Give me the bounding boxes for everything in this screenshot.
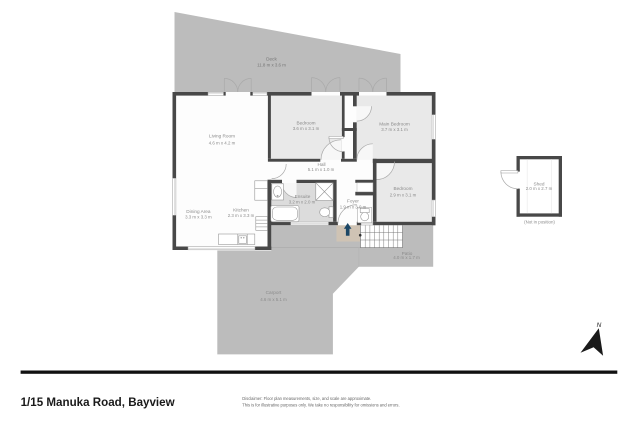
svg-text:3.2 m x 2.0 m: 3.2 m x 2.0 m — [289, 200, 316, 205]
svg-text:Carport: Carport — [266, 290, 282, 295]
svg-text:(Not in position): (Not in position) — [524, 219, 555, 224]
svg-text:3.6 m x 3.1 m: 3.6 m x 3.1 m — [293, 126, 320, 131]
svg-text:Kitchen: Kitchen — [233, 207, 249, 212]
svg-text:5.1 m x 1.0 m: 5.1 m x 1.0 m — [308, 167, 335, 172]
svg-text:4.6 m x 5.1 m: 4.6 m x 5.1 m — [260, 297, 287, 302]
svg-text:Deck: Deck — [266, 57, 277, 62]
svg-text:Ensuite: Ensuite — [295, 194, 311, 199]
svg-text:Bedroom: Bedroom — [296, 120, 315, 125]
svg-text:1.9 m x 3.0 m: 1.9 m x 3.0 m — [340, 204, 367, 209]
svg-text:Dining Area: Dining Area — [186, 209, 211, 214]
svg-text:N: N — [597, 322, 602, 329]
svg-text:Living Room: Living Room — [209, 134, 235, 139]
svg-text:Foyer: Foyer — [347, 199, 359, 204]
svg-text:2.3 m x 3.3 m: 2.3 m x 3.3 m — [228, 213, 255, 218]
svg-text:Disclaimer: Floor plan measure: Disclaimer: Floor plan measurements, siz… — [242, 396, 371, 401]
svg-text:11.8 m x 3.6 m: 11.8 m x 3.6 m — [257, 63, 286, 68]
svg-text:4.0 m x 1.7 m: 4.0 m x 1.7 m — [393, 255, 420, 260]
svg-text:This is for illustrative purpo: This is for illustrative purposes only. … — [242, 402, 399, 407]
svg-text:2.9 m x 3.1 m: 2.9 m x 3.1 m — [390, 192, 417, 197]
svg-text:1/15 Manuka Road, Bayview: 1/15 Manuka Road, Bayview — [21, 396, 176, 409]
svg-text:2.0 m x 2.7 m: 2.0 m x 2.7 m — [526, 186, 553, 191]
svg-text:4.6 m x 4.2 m: 4.6 m x 4.2 m — [209, 141, 236, 146]
svg-text:Bedroom: Bedroom — [393, 186, 412, 191]
svg-text:3.3 m x 3.3 m: 3.3 m x 3.3 m — [185, 215, 212, 220]
svg-text:3.7 m x 3.1 m: 3.7 m x 3.1 m — [381, 127, 408, 132]
svg-text:Hall: Hall — [317, 162, 325, 167]
svg-text:Main Bedroom: Main Bedroom — [379, 121, 410, 126]
